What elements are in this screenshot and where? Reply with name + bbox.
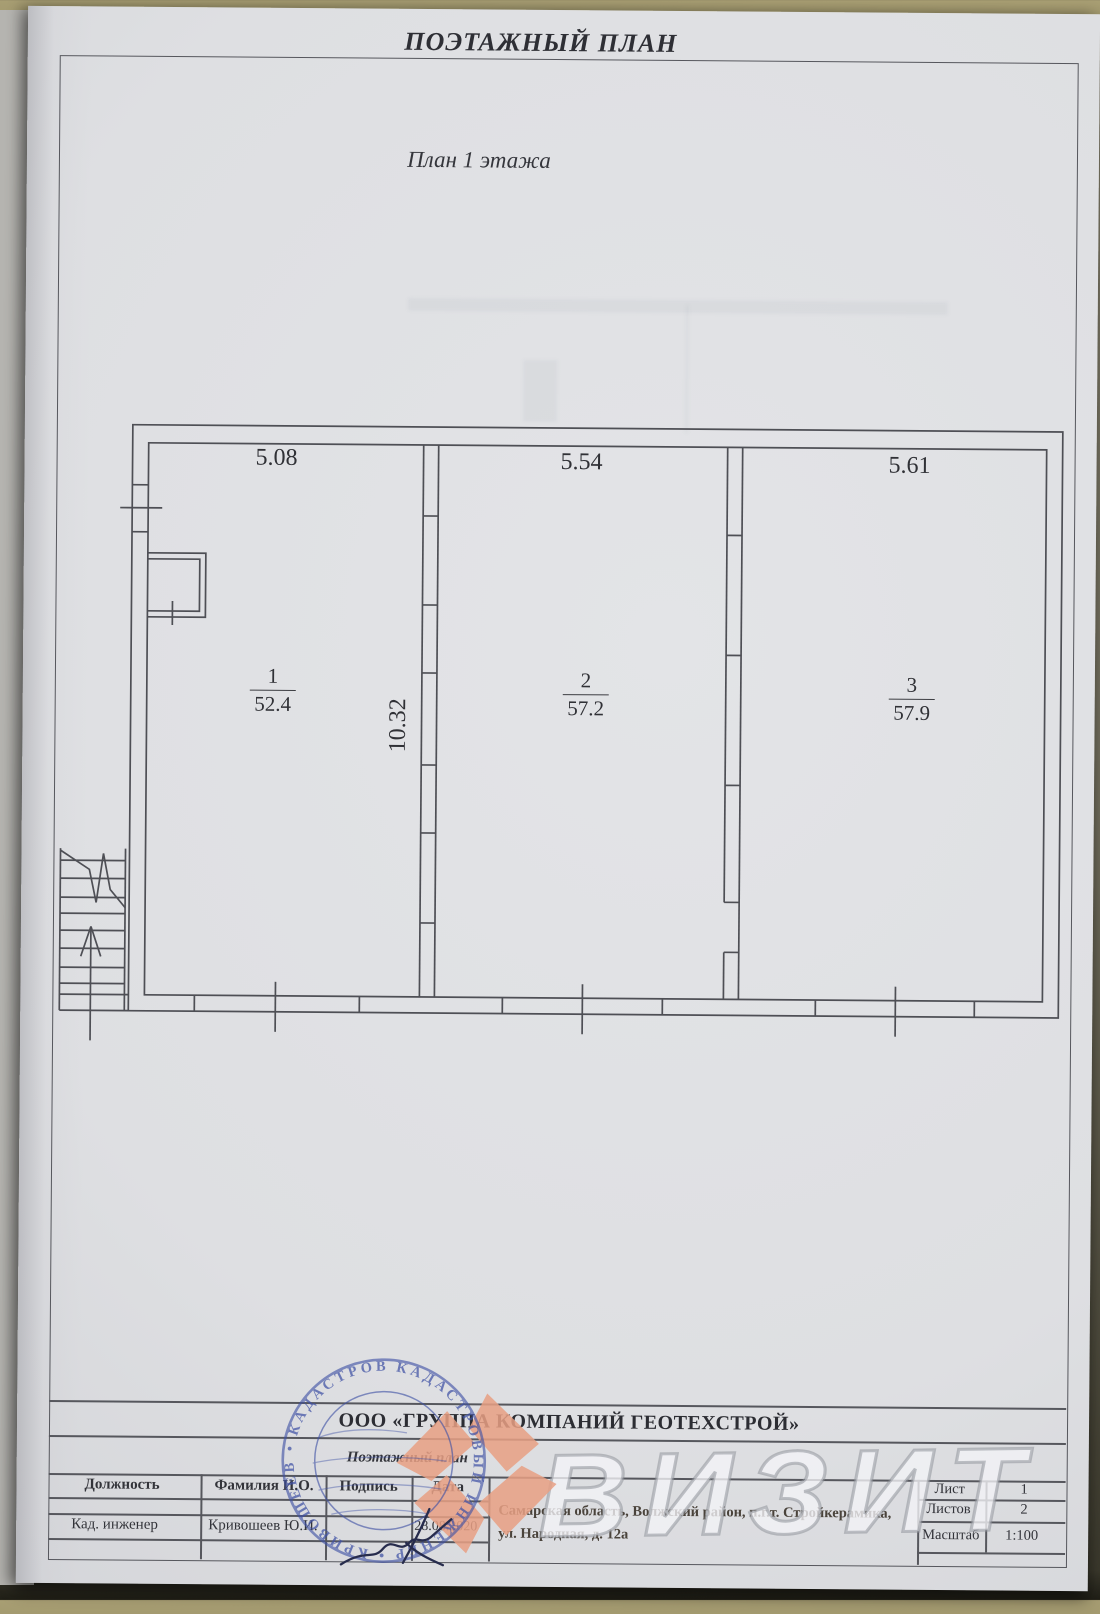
room-3-area: 57.9 [870,700,954,726]
dim-room1-width: 5.08 [232,444,322,472]
page-title: ПОЭТАЖНЫЙ ПЛАН [241,26,841,61]
room-1-number: 1 [250,664,296,691]
document-page: ПОЭТАЖНЫЙ ПЛАН План 1 этажа [16,6,1100,1591]
room-2-area: 57.2 [544,696,628,722]
col-position: Должность [84,1476,159,1494]
scale-label: Масштаб [922,1527,979,1544]
signature [311,1478,492,1579]
sheet-value: 1 [1020,1482,1027,1499]
dim-plan-depth: 10.32 [385,680,413,770]
room-3-label: 3 57.9 [870,672,954,726]
dim-room3-width: 5.61 [864,452,954,480]
plan-caption: План 1 этажа [389,147,569,174]
room-2-label: 2 57.2 [544,668,628,722]
title-block: ООО «ГРУППА КОМПАНИЙ ГЕОТЕХСТРОЙ» Поэтаж… [28,6,1100,14]
room-1-label: 1 52.4 [231,663,315,717]
dim-room2-width: 5.54 [536,449,626,477]
scale-value: 1:100 [1005,1528,1038,1545]
room-1-area: 52.4 [231,691,315,717]
sheets-total-value: 2 [1020,1502,1027,1519]
sheets-total-label: Листов [926,1501,970,1518]
floor-plan-drawing [42,405,1087,1058]
room-2-number: 2 [563,668,609,695]
room-3-number: 3 [889,673,935,700]
engineer-position: Кад. инженер [71,1516,158,1534]
sheet-label: Лист [934,1481,965,1498]
